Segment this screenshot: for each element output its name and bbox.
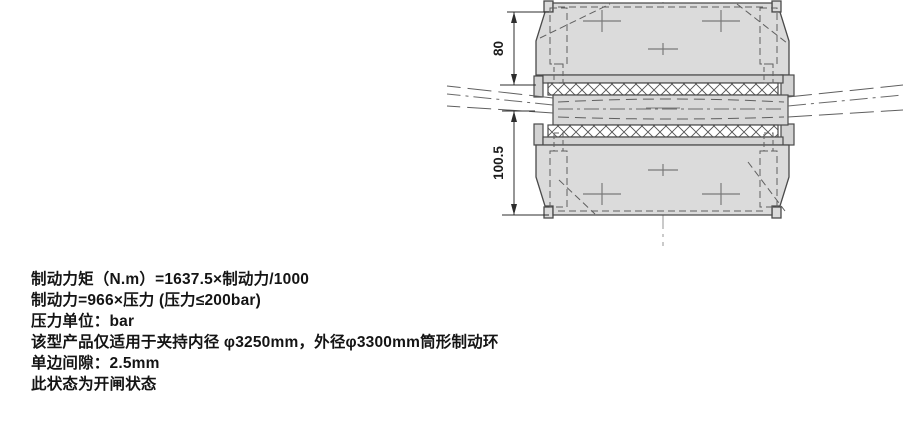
lower-backing-plate — [543, 137, 783, 145]
arrow-up-icon — [511, 111, 517, 122]
upper-backing-plate — [543, 75, 783, 83]
dimension-80-label: 80 — [491, 41, 506, 56]
note-torque-formula: 制动力矩（N.m）=1637.5×制动力/1000 — [31, 269, 671, 290]
page: 80 100.5 制动力矩（N.m）=1637.5×制动力/1000 制动力=9… — [0, 0, 903, 429]
brake-ring — [553, 95, 788, 125]
arrow-up-icon — [511, 12, 517, 23]
lower-left-carrier-block — [534, 124, 543, 145]
dimension-100-5-label: 100.5 — [491, 146, 506, 180]
lower-caliper-body — [536, 145, 789, 218]
arrow-down-icon — [511, 204, 517, 215]
note-force-formula: 制动力=966×压力 (压力≤200bar) — [31, 290, 671, 311]
note-open-state: 此状态为开闸状态 — [31, 374, 671, 395]
upper-friction-pad — [548, 83, 778, 95]
note-side-clearance: 单边间隙：2.5mm — [31, 353, 671, 374]
upper-caliper-body — [536, 1, 789, 75]
lower-friction-pad — [548, 125, 778, 137]
arrow-down-icon — [511, 74, 517, 85]
note-application-range: 该型产品仅适用于夹持内径 φ3250mm，外径φ3300mm筒形制动环 — [31, 332, 671, 353]
notes-block: 制动力矩（N.m）=1637.5×制动力/1000 制动力=966×压力 (压力… — [31, 269, 671, 395]
note-pressure-unit: 压力单位：bar — [31, 311, 671, 332]
upper-left-carrier-block — [534, 76, 543, 97]
